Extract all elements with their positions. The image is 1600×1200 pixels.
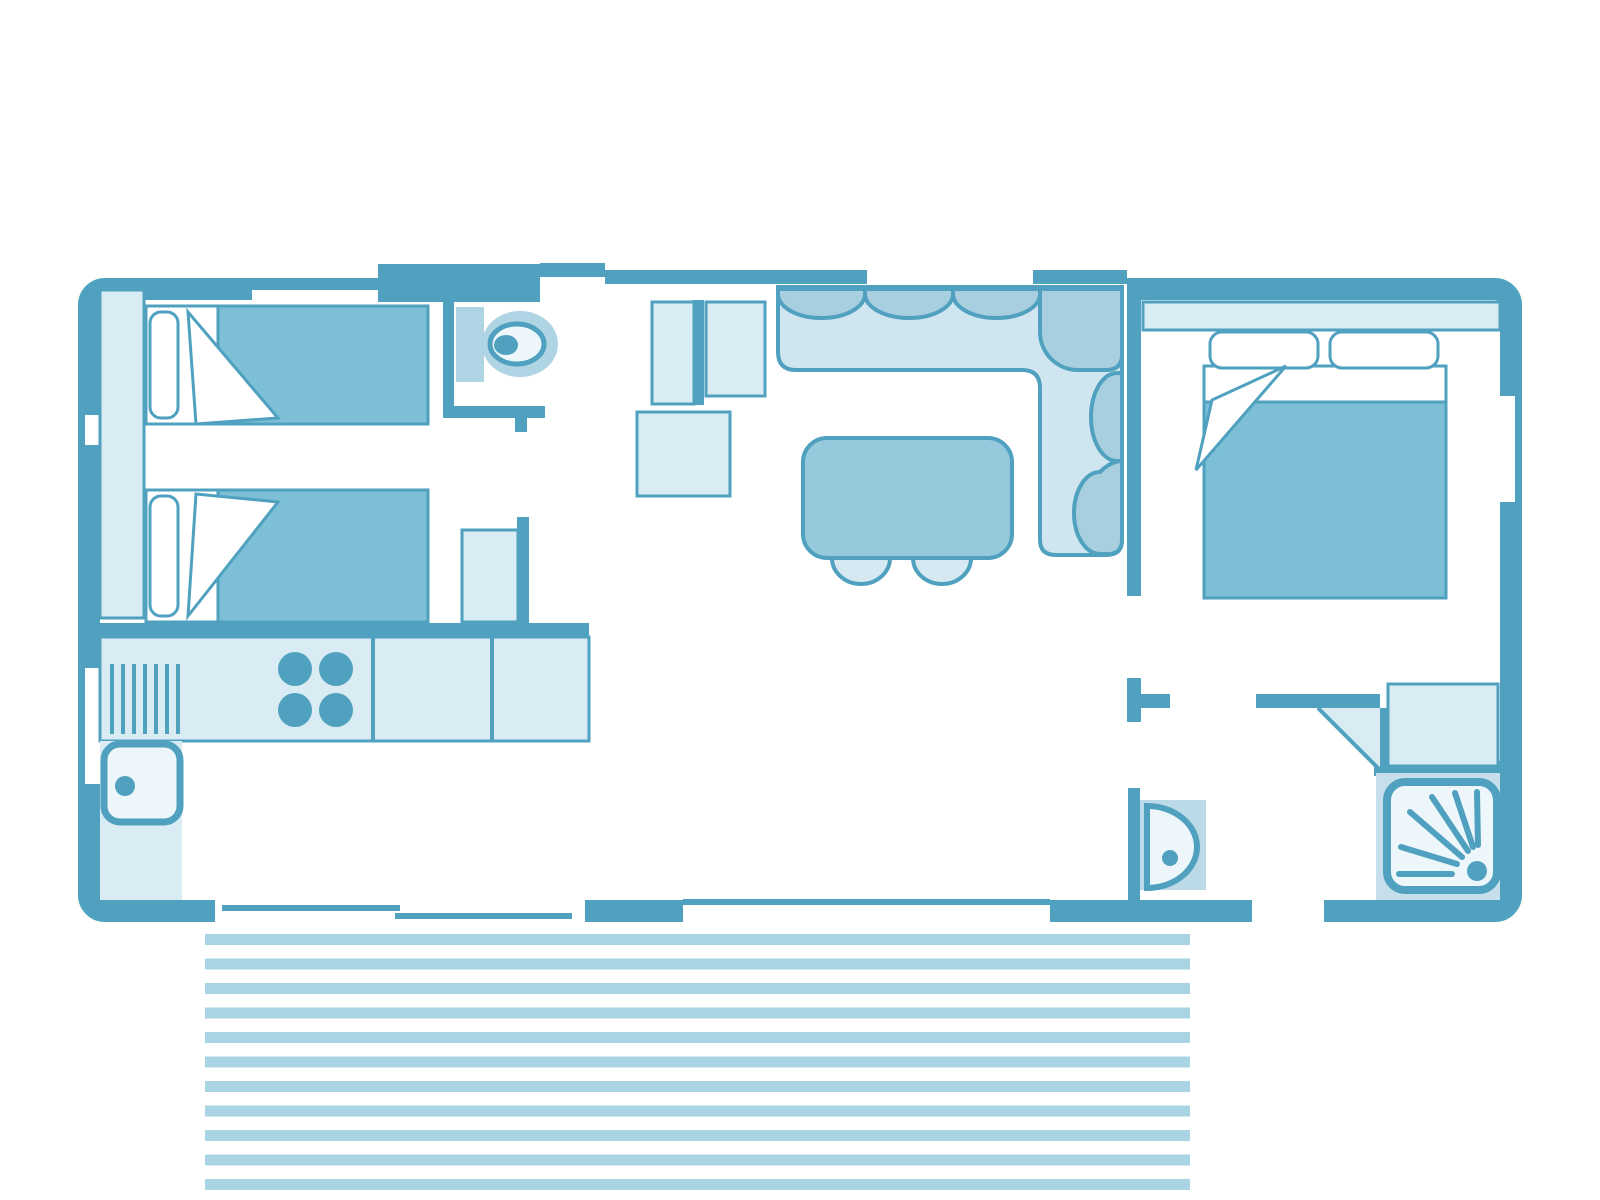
storage-cabinet-tall bbox=[652, 302, 694, 404]
thin-wall-left-of-window bbox=[605, 270, 867, 279]
window-cutout bbox=[540, 277, 605, 302]
living-dining-room bbox=[778, 287, 1122, 584]
duvet bbox=[1204, 402, 1446, 598]
twin-bedroom bbox=[100, 290, 428, 622]
decking-plank bbox=[205, 1155, 1190, 1166]
wc-door-jamb bbox=[515, 418, 527, 432]
wc-room bbox=[456, 307, 558, 382]
storage-cabinet-square bbox=[637, 412, 730, 496]
washbasin-wall-stub bbox=[1128, 788, 1140, 900]
pillow-icon bbox=[1210, 332, 1318, 368]
decking-plank bbox=[205, 1106, 1190, 1117]
kitchen bbox=[100, 637, 589, 900]
washbasin bbox=[1140, 800, 1206, 890]
kitchen-sink-icon bbox=[104, 744, 180, 822]
sliding-door-panel-1 bbox=[222, 905, 400, 911]
bedroom-door-wall bbox=[1256, 694, 1380, 708]
master-wardrobe bbox=[1388, 684, 1498, 766]
basin-drain-icon bbox=[1162, 850, 1178, 866]
floor-plan-drawing bbox=[0, 0, 1600, 1200]
window-box-top bbox=[378, 264, 540, 302]
decking-plank bbox=[205, 1081, 1190, 1092]
pillow-icon bbox=[150, 312, 178, 418]
pillow-icon bbox=[1330, 332, 1438, 368]
dining-table bbox=[803, 438, 1012, 558]
stool-icon bbox=[913, 558, 971, 584]
decking-plank bbox=[205, 1179, 1190, 1190]
sofa-corner-cushion-icon bbox=[1040, 289, 1122, 370]
decking-plank bbox=[205, 934, 1190, 945]
entrance-door-opening bbox=[1252, 897, 1324, 924]
decking-plank bbox=[205, 1130, 1190, 1141]
decking-plank bbox=[205, 959, 1190, 970]
wardrobe-strip bbox=[100, 290, 144, 618]
window-left-2 bbox=[85, 668, 100, 784]
decking-plank bbox=[205, 1008, 1190, 1019]
bay-window-line bbox=[683, 899, 1050, 905]
sliding-door-panel-2 bbox=[395, 913, 572, 919]
window-left-1 bbox=[85, 415, 100, 445]
living-bedroom-wall bbox=[1127, 280, 1141, 596]
sink-drain-icon bbox=[115, 776, 135, 796]
decking-plank bbox=[205, 1057, 1190, 1068]
headboard-shelf bbox=[1143, 302, 1500, 330]
kitchen-wall-top bbox=[100, 623, 589, 637]
shower-room bbox=[1140, 773, 1500, 900]
toilet-cistern bbox=[456, 307, 484, 382]
draining-board-icon bbox=[112, 664, 178, 734]
decking-plank bbox=[205, 983, 1190, 994]
kitchen-counter bbox=[100, 637, 589, 741]
wc-wall-bottom bbox=[443, 406, 545, 418]
terrace-decking bbox=[205, 934, 1190, 1190]
decking-plank bbox=[205, 1032, 1190, 1043]
toilet-flush-icon bbox=[494, 335, 518, 355]
thin-wall-right-of-window bbox=[1033, 270, 1127, 279]
hall-wall-stub-arm bbox=[1127, 694, 1170, 708]
pillow-icon bbox=[150, 496, 178, 616]
double-bed bbox=[1196, 332, 1446, 598]
window-top-1 bbox=[252, 278, 378, 290]
storage-cabinet-fridge bbox=[706, 302, 765, 396]
single-bed-2 bbox=[146, 490, 428, 622]
wc-wall-left bbox=[443, 300, 454, 418]
window-right bbox=[1500, 396, 1515, 502]
single-bed-1 bbox=[146, 306, 428, 424]
stool-icon bbox=[832, 558, 890, 584]
window-top-2 bbox=[540, 263, 605, 277]
storage-cabinet-small bbox=[462, 530, 518, 622]
floor-plan-page bbox=[0, 0, 1600, 1200]
